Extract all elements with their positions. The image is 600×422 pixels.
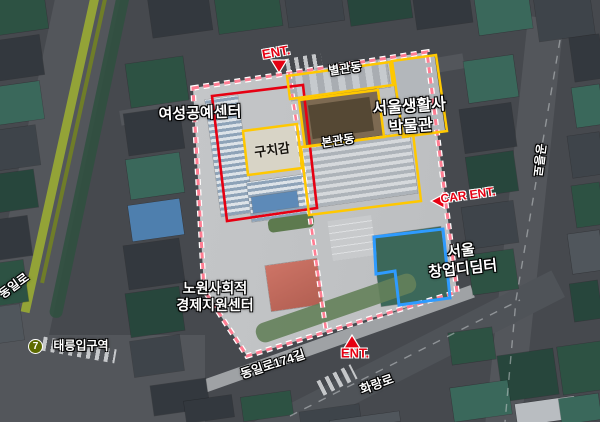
- subway-line7-icon: 7: [28, 339, 43, 354]
- label-car-ent: CAR ENT.: [440, 184, 497, 206]
- label-nowon-line1: 노원사회적: [176, 280, 253, 297]
- aerial-site-map: 여성공예센터 별관동 서울생활사 박물관 구치감 본관동 노원사회적 경제지원센…: [0, 0, 600, 422]
- label-street-dongilro: 동일로: [0, 270, 32, 301]
- labels-layer: 여성공예센터 별관동 서울생활사 박물관 구치감 본관동 노원사회적 경제지원센…: [0, 0, 600, 422]
- label-street-hwarangro: 화랑로: [358, 372, 396, 398]
- label-annex: 별관동: [328, 59, 363, 78]
- label-station-name: 태릉입구역: [53, 339, 108, 354]
- label-didimteo: 서울 창업디딤터: [426, 239, 498, 283]
- label-museum: 서울생활사 박물관: [372, 95, 448, 139]
- label-women-craft-center: 여성공예센터: [158, 103, 241, 124]
- label-nowon-center: 노원사회적 경제지원센터: [176, 280, 253, 314]
- label-ent-bottom: ENT.: [341, 346, 369, 361]
- label-detention-house: 구치감: [253, 137, 291, 161]
- label-street-dongilro174gil: 동일로174길: [239, 347, 307, 382]
- label-main-building: 본관동: [321, 131, 356, 150]
- label-street-gongneungro: 공릉로: [530, 143, 549, 178]
- label-ent-top: ENT.: [261, 42, 291, 62]
- label-nowon-line2: 경제지원센터: [176, 297, 253, 314]
